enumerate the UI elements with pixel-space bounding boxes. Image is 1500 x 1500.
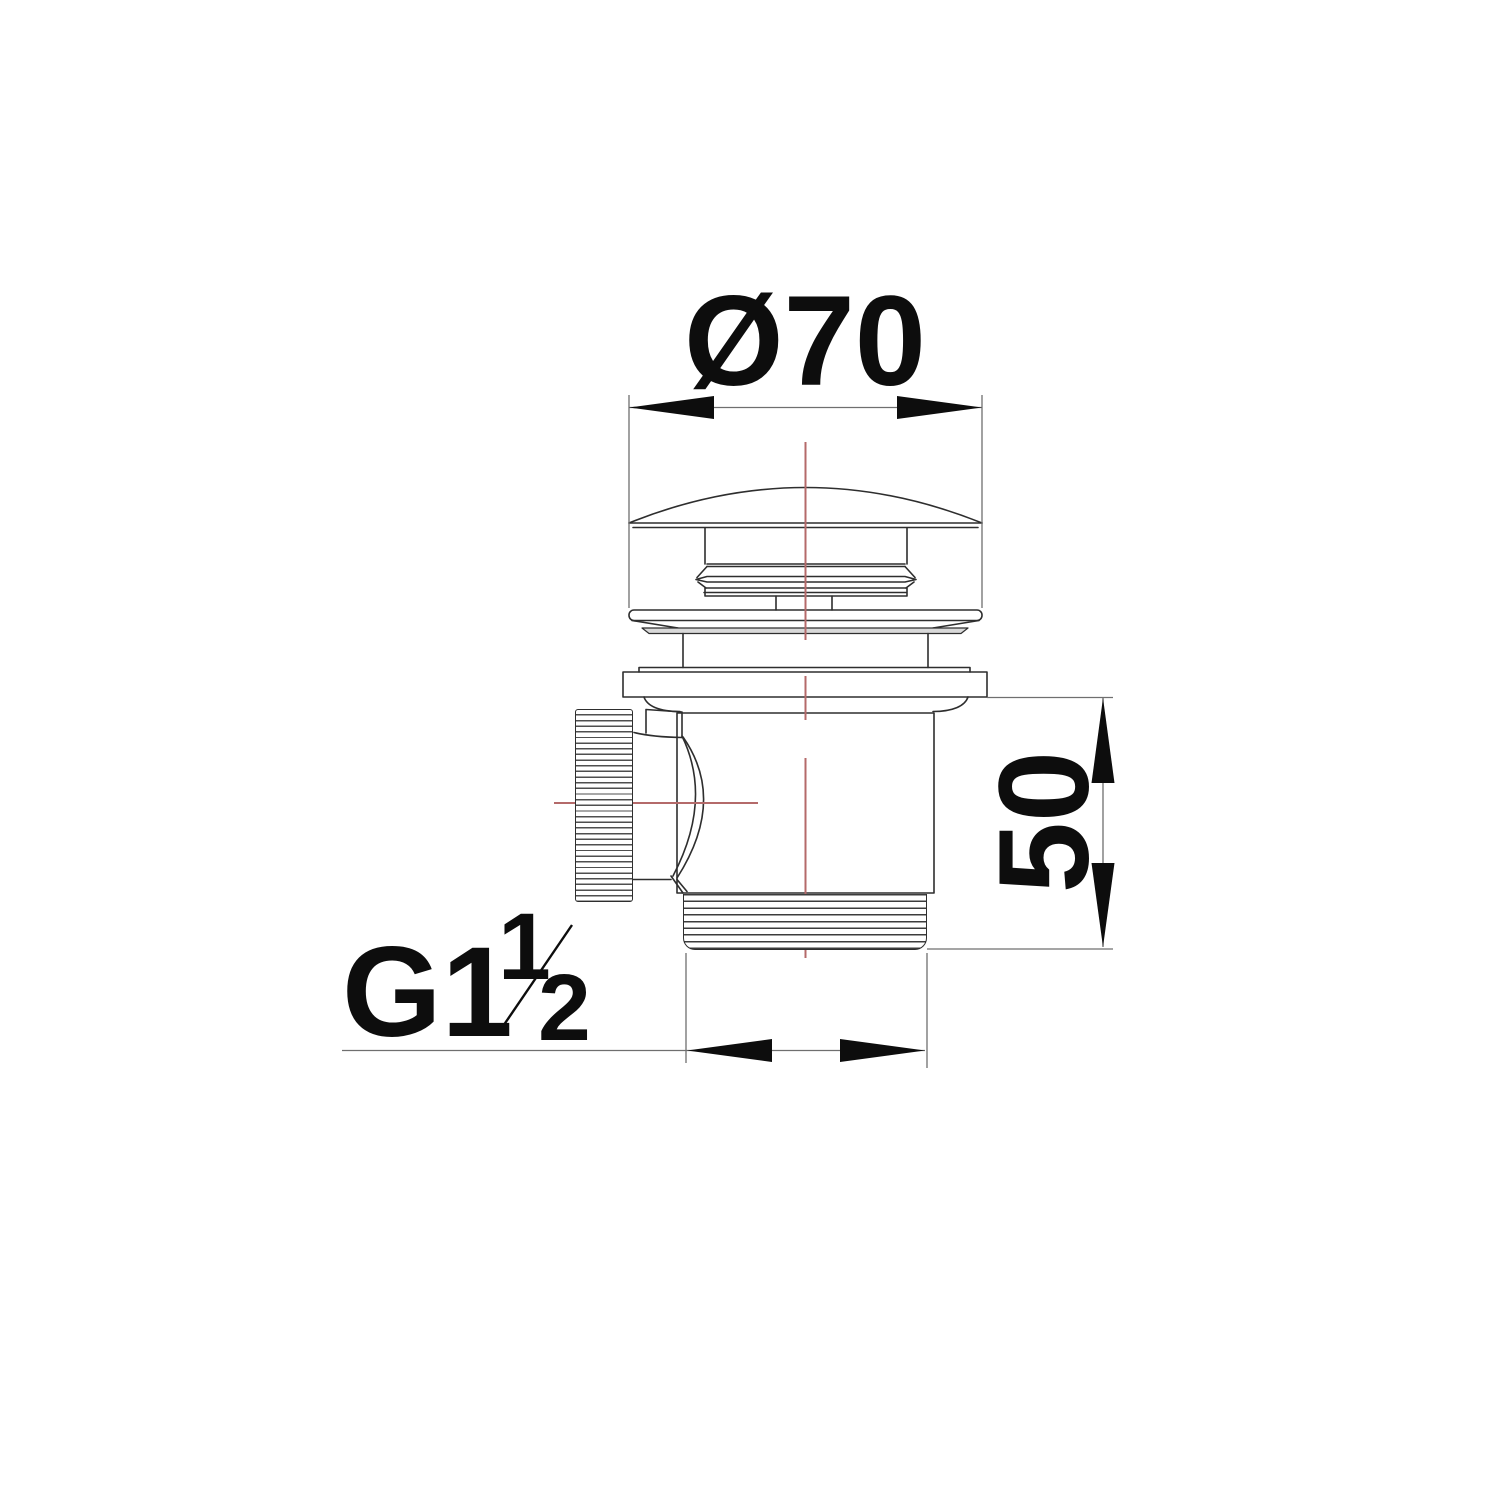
dim-height-label: 50 xyxy=(981,751,1109,893)
joint-top-curve xyxy=(634,733,682,738)
technical-drawing-canvas: Ø70 50 G1 1 2 xyxy=(0,0,1500,1500)
thread-fraction-denominator: 2 xyxy=(538,961,591,1056)
dim-thread-label: G1 1 2 xyxy=(342,900,622,1060)
drawing-layer xyxy=(0,0,1500,1500)
dim-thread-arrow-left xyxy=(687,1039,772,1062)
valve-knob-joint xyxy=(633,710,704,894)
thread-size-text: G1 xyxy=(342,929,513,1057)
joint-foot xyxy=(671,876,687,893)
knurled-knob xyxy=(575,709,633,902)
dim-thread-arrow-right xyxy=(840,1039,925,1062)
dim-diameter-label: Ø70 xyxy=(628,278,982,406)
thread-section xyxy=(683,894,927,950)
cap-stem xyxy=(776,596,832,610)
